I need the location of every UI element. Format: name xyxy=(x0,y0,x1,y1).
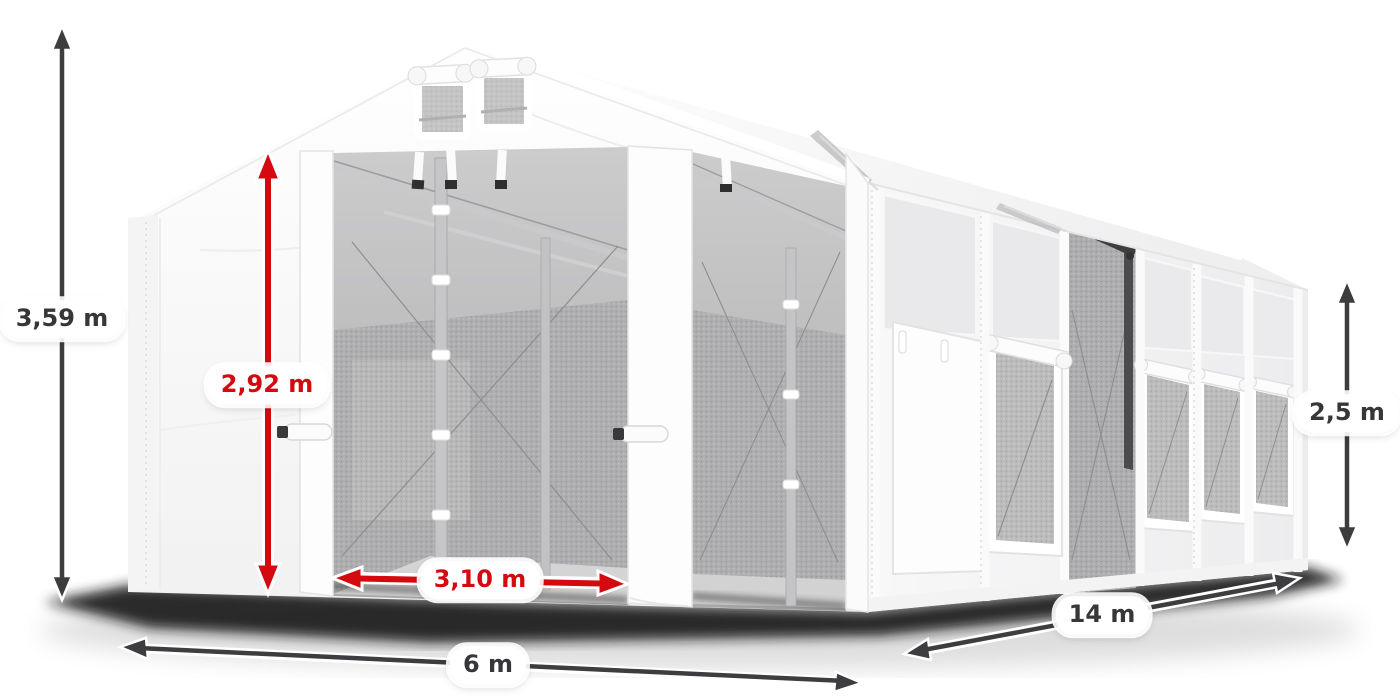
side-window-2 xyxy=(1135,358,1202,532)
strap-buckle xyxy=(720,184,732,192)
hanging-strap xyxy=(721,158,731,186)
gable-window-left xyxy=(408,64,475,136)
door-leaf-right-edge xyxy=(846,154,868,612)
total-height-label: 3,59 m xyxy=(3,300,122,338)
side-opening xyxy=(1060,228,1136,594)
side-window-1 xyxy=(982,334,1072,556)
side-window-3 xyxy=(1193,368,1251,524)
interior-frame-pole xyxy=(541,238,550,590)
door-height-label: 2,92 m xyxy=(208,366,327,404)
side-door-panel xyxy=(893,322,985,574)
product-dimension-diagram: 3,59 m 2,92 m 3,10 m 6 m 14 m 2,5 m xyxy=(0,0,1400,700)
side-wall-height-label: 2,5 m xyxy=(1296,394,1398,432)
front-width-label: 6 m xyxy=(450,646,526,684)
door-width-label: 3,10 m xyxy=(421,561,540,599)
frame-corner-pole xyxy=(1124,246,1133,470)
interior-frame-pole xyxy=(432,158,450,592)
gable-window-right xyxy=(470,57,537,128)
tent-illustration xyxy=(0,0,1400,700)
door-strap-handle xyxy=(277,424,332,440)
door-strap-handle xyxy=(613,426,668,442)
front-door-opening-right xyxy=(692,152,846,611)
side-length-label: 14 m xyxy=(1056,596,1149,634)
side-wall xyxy=(868,183,1308,612)
front-door-opening-left xyxy=(333,147,628,605)
center-door-leaf xyxy=(628,146,692,607)
